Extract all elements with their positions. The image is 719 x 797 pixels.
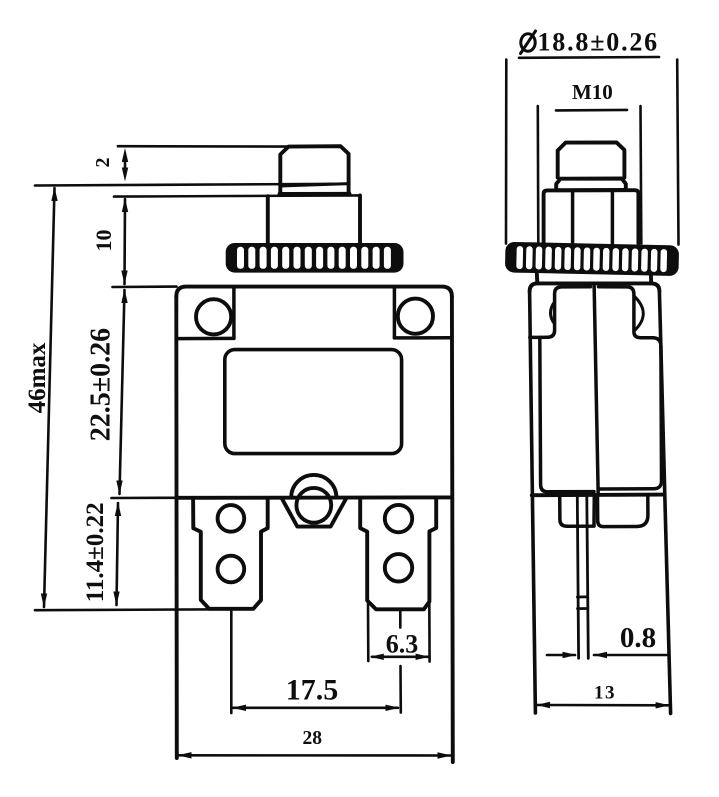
svg-text:0.8: 0.8: [620, 622, 656, 654]
svg-text:10: 10: [91, 230, 116, 252]
svg-text:2: 2: [92, 158, 114, 168]
svg-text:M10: M10: [572, 80, 613, 104]
svg-text:46max: 46max: [24, 342, 51, 413]
svg-text:17.5: 17.5: [286, 673, 339, 706]
svg-text:28: 28: [302, 728, 322, 749]
svg-text:13: 13: [594, 683, 616, 704]
svg-text:18.8±0.26: 18.8±0.26: [538, 28, 659, 57]
svg-text:22.5±0.26: 22.5±0.26: [85, 328, 116, 441]
svg-text:11.4±0.22: 11.4±0.22: [82, 502, 109, 602]
svg-text:6.3: 6.3: [386, 630, 419, 659]
